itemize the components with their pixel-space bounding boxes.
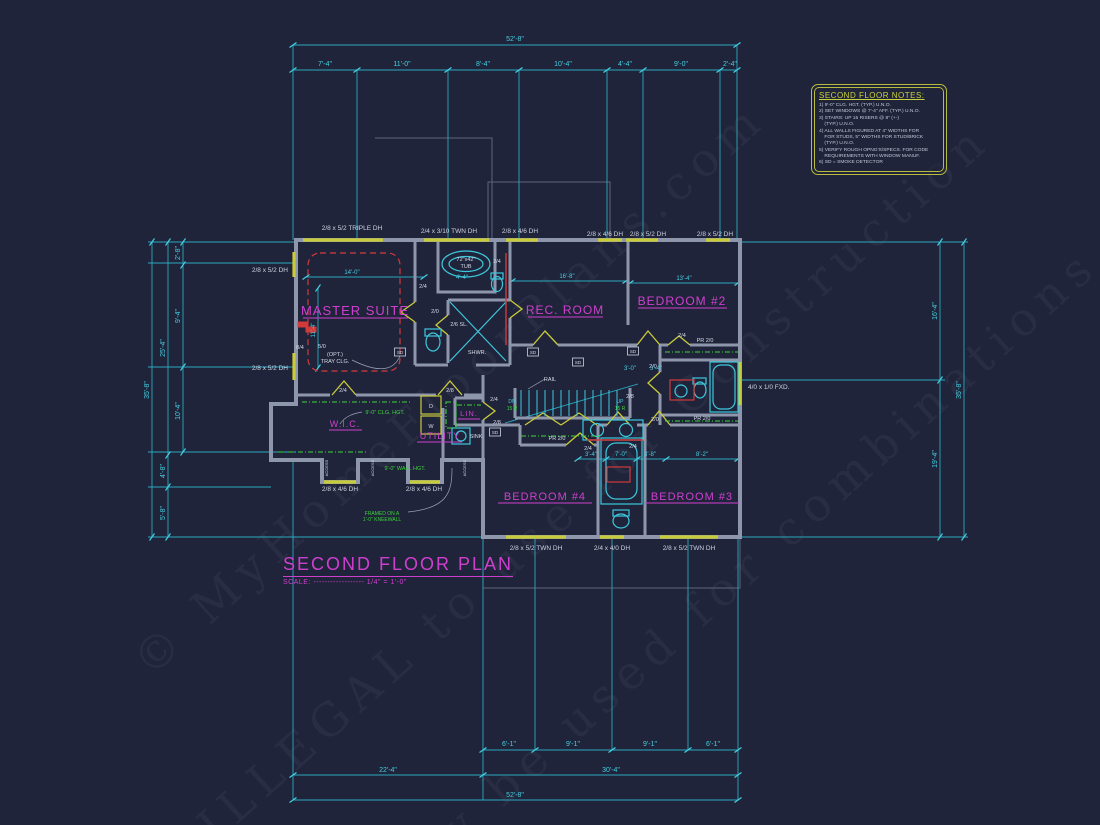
access-label: ACCESS: [324, 459, 329, 476]
sink-label: SINK: [470, 434, 483, 440]
tub-size-label: 72"x42": [457, 257, 476, 263]
room-label-bedroom-3: BEDROOM #3: [651, 491, 733, 503]
dim-label: 19'-4": [932, 450, 939, 468]
kneewall-note: 1'-0" KNEEWALL: [363, 517, 402, 523]
tray-ceiling-note: TRAY CLG.: [321, 359, 350, 365]
sd-marker: SD: [630, 349, 637, 354]
dim-label: 4'-4": [618, 61, 632, 68]
door-label: 5/0: [318, 344, 326, 350]
dim-label: 2'-4": [723, 61, 737, 68]
dim-label: 11'-4": [311, 323, 317, 338]
dim-label: 3'-0": [624, 366, 636, 372]
door-label: 2/4: [339, 388, 347, 394]
note-line: 6) SD = SMOKE DETECTOR: [819, 160, 939, 166]
page-title: SECOND FLOOR PLAN: [283, 554, 513, 577]
shower-label: SHWR.: [468, 350, 487, 356]
dim-label: 52'-8": [506, 792, 524, 799]
dim-label: 2'-8": [175, 246, 182, 260]
plan-scale: SCALE: ------------------ 1/4" = 1'-0": [283, 579, 513, 586]
window-label: 2/4 x 3/10 TWN DH: [421, 228, 478, 235]
dim-label: 7'-4": [318, 61, 332, 68]
dim-label: 52'-8": [506, 36, 524, 43]
stair-treads: [521, 390, 617, 416]
dryer-label: D: [429, 404, 433, 410]
window-label: 2/4 x 4/0 DH: [594, 545, 630, 552]
dim-label: 6'-1": [502, 741, 516, 748]
dim-label: 8'-4": [476, 61, 490, 68]
door-label: 2/8: [446, 388, 454, 394]
room-label-utility: UTILITY: [420, 431, 461, 441]
dim-label: 25'-4": [160, 339, 167, 357]
window-label: 2/8 x 5/2 DH: [252, 365, 288, 372]
dim-label: 10'-4": [554, 61, 572, 68]
notes-title: SECOND FLOOR NOTES:: [819, 91, 939, 100]
window-label: 2/8 x 5/2 TRIPLE DH: [322, 225, 383, 232]
sd-marker: SD: [530, 350, 537, 355]
window-label: 2/8 x 5/2 DH: [697, 231, 733, 238]
room-label-master-suite: MASTER SUITE: [301, 303, 409, 318]
title-block: SECOND FLOOR PLAN SCALE: ---------------…: [283, 554, 513, 586]
tub-label: TUB: [461, 264, 472, 270]
rail-label: RAIL: [544, 377, 556, 383]
door-label: 2/0: [431, 309, 439, 315]
room-label-bedroom-2: BEDROOM #2: [638, 294, 727, 308]
dim-label: 16'-8": [559, 274, 574, 280]
sd-marker: SD: [492, 430, 499, 435]
sd-marker: SD: [397, 350, 404, 355]
blueprint-canvas: © MyHomeFloorPlans.com ILLEGAL to use fo…: [0, 0, 1100, 825]
dim-label: 10'-4": [175, 402, 182, 420]
second-floor-notes-box: SECOND FLOOR NOTES: 1) 9'-0" CLG. HGT. (…: [811, 84, 947, 175]
dim-label: 5'-8": [160, 506, 167, 520]
door-label: 8/4: [296, 345, 304, 351]
dim-label: 8'-2": [696, 452, 708, 458]
dim-label: 11'-0": [393, 61, 411, 68]
dim-label: 3'-4": [585, 452, 597, 458]
window-label: 2/8 x 5/2 DH: [630, 231, 666, 238]
dim-label: 9'-4": [175, 309, 182, 323]
sd-marker: SD: [575, 360, 582, 365]
door-label: 2/6 SL.: [450, 322, 468, 328]
dim-label: 14'-0": [344, 270, 359, 276]
dim-label: 30'-4": [602, 767, 620, 774]
wall-height-note: 9'-0" WALL HGT.: [384, 466, 426, 472]
room-labels: MASTER SUITE REC. ROOM BEDROOM #2 BEDROO…: [301, 294, 733, 503]
ceiling-height-note: 9'-0" CLG. HGT.: [365, 410, 405, 416]
window-label: 2/8 x 4/6 DH: [406, 486, 442, 493]
notes-inner-border: SECOND FLOOR NOTES: 1) 9'-0" CLG. HGT. (…: [814, 87, 944, 172]
stair-risers-label: 15 R: [615, 406, 626, 412]
door-label: 2/8: [493, 420, 501, 426]
dim-label: 9'-1": [566, 741, 580, 748]
door-label: 2/4: [493, 259, 501, 265]
room-label-rec-room: REC. ROOM: [526, 303, 604, 317]
dim-label: 13'-4": [676, 276, 691, 282]
dim-label: 3'-4": [650, 366, 662, 372]
plan-annotations: (OPT.) TRAY CLG. 72"x42" TUB SHWR. RAIL …: [321, 257, 626, 523]
dim-label: 9'-1": [643, 741, 657, 748]
dim-label: 4'-4": [456, 275, 468, 281]
door-label: 2/4: [419, 284, 427, 290]
tray-ceiling-note: (OPT.): [327, 352, 343, 358]
window-label: 4/0 x 1/0 FXD.: [748, 384, 790, 391]
stair-risers-label: 15 R: [507, 406, 518, 412]
window-label: 2/8 x 5/2 TWN DH: [663, 545, 716, 552]
dim-label: 35'-8": [956, 381, 963, 399]
door-label: PR 2/0: [697, 338, 714, 344]
stair-up-label: UP: [617, 399, 625, 405]
stair-dn-label: DN: [508, 399, 516, 405]
window-label: 2/8 x 5/2 DH: [252, 267, 288, 274]
dim-label: 4'-8": [160, 464, 167, 478]
dim-label: 3'-8": [644, 452, 656, 458]
access-label: ACCESS: [370, 459, 375, 476]
dim-label: 16'-4": [932, 302, 939, 320]
room-label-linen: LIN.: [460, 409, 478, 418]
door-label: PR 2/0: [549, 436, 566, 442]
room-label-wic: W.I.C.: [330, 419, 361, 429]
dim-label: 7'-0": [615, 452, 627, 458]
dim-label: 22'-4": [379, 767, 397, 774]
window-label: 2/8 x 4/6 DH: [587, 231, 623, 238]
window-label: 2/8 x 4/6 DH: [322, 486, 358, 493]
washer-label: W: [428, 424, 434, 430]
door-label: 2/4: [490, 397, 498, 403]
window-label: 2/8 x 5/2 TWN DH: [510, 545, 563, 552]
dim-label: 9'-0": [674, 61, 688, 68]
door-label: 2/8: [626, 394, 634, 400]
room-label-bedroom-4: BEDROOM #4: [504, 491, 586, 503]
window-label: 2/8 x 4/6 DH: [502, 228, 538, 235]
door-label: 2/4: [678, 333, 686, 339]
dim-label: 35'-8": [144, 381, 151, 399]
access-label: ACCESS: [462, 459, 467, 476]
roof-outlines: [375, 138, 740, 588]
door-label: PR 2/0: [694, 416, 711, 422]
dim-label: 6'-1": [706, 741, 720, 748]
door-label: 2/0: [651, 417, 659, 423]
door-label: 2/4: [629, 444, 637, 450]
